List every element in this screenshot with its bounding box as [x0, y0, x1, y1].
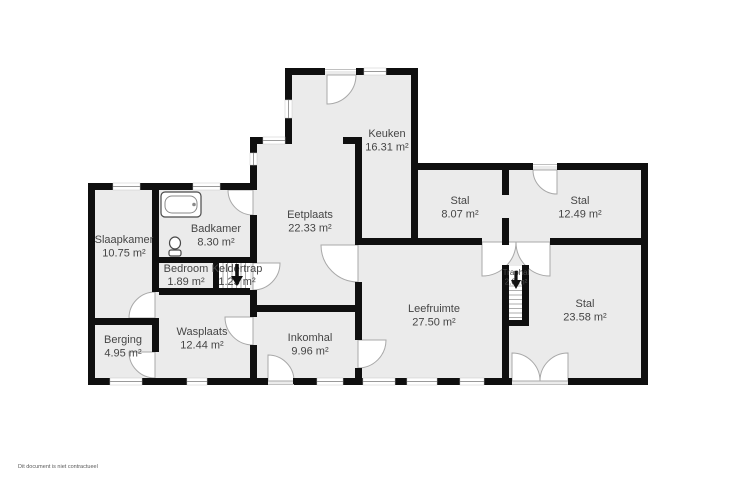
room-label-berging: Berging4.95 m²	[104, 334, 142, 360]
floorplan-page: Slaapkamer10.75 m² Badkamer8.30 m² Bedro…	[0, 0, 736, 490]
room-label-wasplaats: Wasplaats12.44 m²	[177, 326, 228, 352]
room-label-eetplaats: Eetplaats22.33 m²	[287, 209, 333, 235]
window	[263, 137, 285, 144]
room-label-badkamer: Badkamer8.30 m²	[191, 223, 241, 249]
room-label-slaapkamer: Slaapkamer10.75 m²	[95, 234, 154, 260]
floorplan-drawing: Slaapkamer10.75 m² Badkamer8.30 m² Bedro…	[0, 0, 736, 490]
disclaimer-text: Dit document is niet contractueel	[18, 464, 98, 470]
window	[193, 183, 220, 190]
toilet-icon	[169, 237, 181, 256]
window	[250, 153, 257, 165]
window	[110, 378, 142, 385]
room-label-leefruimte: Leefruimte27.50 m²	[408, 303, 460, 329]
window	[407, 378, 437, 385]
floor-area	[92, 71, 647, 384]
room-label-keuken: Keuken16.31 m²	[365, 128, 409, 154]
window	[364, 68, 386, 75]
window	[113, 183, 140, 190]
window	[363, 378, 395, 385]
window	[317, 378, 343, 385]
window	[460, 378, 484, 385]
room-label-inkomhal: Inkomhal9.96 m²	[288, 332, 333, 358]
window	[285, 100, 292, 118]
bathtub-icon	[161, 192, 201, 217]
window	[187, 378, 207, 385]
room-label-bedroom: Bedroom1.89 m²	[164, 263, 209, 288]
